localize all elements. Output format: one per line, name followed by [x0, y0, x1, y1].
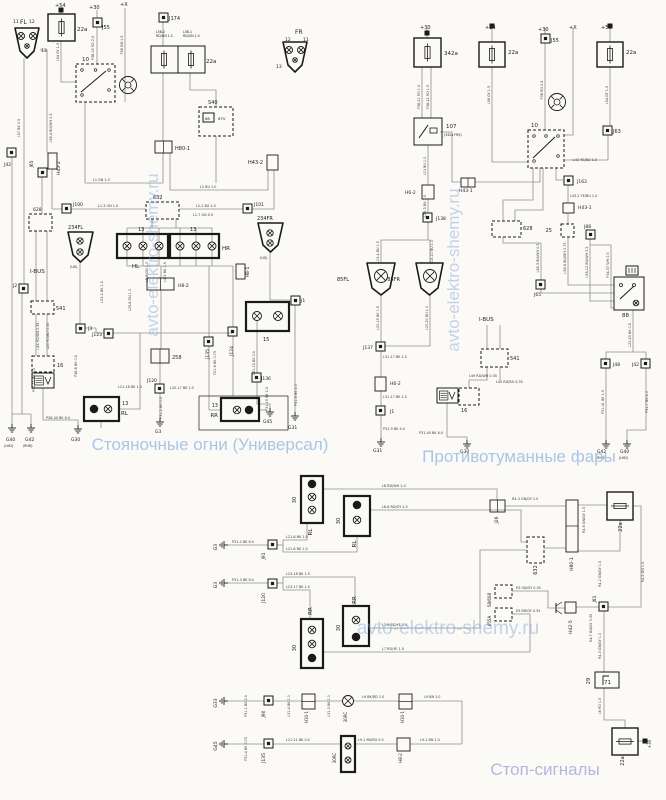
power-terminal [425, 31, 430, 36]
component-label: 16 [57, 363, 63, 369]
wire-label: L2 BU 1.0 [200, 185, 216, 189]
component-label: 342a [444, 51, 458, 57]
wire-label: P21-6 BK 0.75 [213, 351, 217, 375]
wire-label: P31-9 BK 4.0 [383, 427, 405, 431]
wire-label: L21-21 BK 0.5 [286, 738, 310, 742]
junction-connector [567, 179, 570, 182]
lamp-filled-icon [90, 405, 98, 413]
diagram-background [0, 0, 666, 800]
lamp-filled-icon [308, 480, 316, 488]
wire-label: L58-12 BU/WH 0.5 [585, 246, 589, 277]
component-label: G40 [620, 449, 629, 455]
component-label: 632 [533, 565, 539, 575]
wire-label: R4-3 GN/GY 1.0 [512, 497, 538, 501]
component-label: G33 [213, 698, 219, 707]
component-label: RR [210, 413, 218, 419]
wire-label: L9 BN 1.0 [424, 695, 440, 699]
component-label: 22a [620, 756, 626, 765]
wire-label: L44 RD/GN 0.35 [36, 322, 40, 349]
component-label: FR [295, 29, 303, 36]
component-label: H8-2 [178, 283, 189, 289]
component-label: 13 [41, 48, 47, 54]
component-label: I-BUS [30, 269, 45, 275]
component-label: J42 [3, 162, 11, 168]
component-label: RD/GN 1.0 [156, 34, 173, 38]
component-label: J136 [260, 376, 271, 382]
component-label: I-BUS [479, 317, 494, 323]
component-label: 30RC [343, 712, 348, 723]
component-label: S40 [208, 100, 218, 106]
wire-label: P31-11 BK 0.5 [32, 368, 36, 392]
wire-label: L58-6 BU/WH 0.75 [563, 242, 567, 273]
wire-label: L54 GY 1.5 [605, 86, 609, 104]
component-label: H8-2 [398, 753, 403, 763]
component-label: J88 [583, 224, 591, 230]
wire-label: L21-8 BK 1.0 [286, 535, 308, 539]
component-label: J135 [261, 753, 267, 764]
component-label: 67V [218, 116, 226, 121]
junction-connector [294, 299, 297, 302]
lamp-filled-icon [245, 406, 253, 414]
component-label: +30 [647, 739, 652, 748]
component-label: 30 [336, 625, 342, 631]
component-label: 13 [276, 64, 282, 70]
wire-label: L58-3 BU/WH 0.5 [536, 244, 540, 273]
wire-label: L13 BU 1.0 [423, 157, 427, 176]
component-label: RR [308, 607, 314, 615]
wire-label: L21-18 BK 1.0 [118, 385, 142, 389]
component-label: 22a [508, 50, 518, 56]
wire-label: R4-5 GN 1.5 [641, 562, 645, 583]
wire-label: R4-6 GN/GY 1.5 [582, 507, 586, 533]
component-label: 234FL [68, 225, 83, 231]
wire-label: L6 RD 1.5 [598, 698, 602, 715]
component-label: 30 [336, 518, 342, 524]
component-label: 11 [303, 37, 309, 43]
wire-label: P38-40 BK 6.0 [46, 416, 70, 420]
component-label: J55 [101, 25, 110, 31]
wire-label: L20-17 BK 1.0 [170, 386, 194, 390]
lamp-filled-icon [353, 501, 361, 509]
wire-label: L8-6 RD/GY 1.5 [382, 505, 408, 509]
wire-label: L20-19 BK 1.5 [376, 306, 380, 330]
component-label: FL [20, 19, 27, 26]
wire-label: P31-4 BK 0.75 [244, 737, 248, 761]
component-label: 12 [29, 19, 35, 25]
component-label: H80-1 [175, 146, 190, 152]
component-label: 628 [523, 226, 533, 232]
wire-label: L31-4 BK 1.0 [287, 695, 291, 717]
junction-connector [604, 362, 607, 365]
component-label: J135 [205, 349, 211, 360]
component-label: J65 [533, 292, 541, 298]
component-label: J91 [261, 552, 267, 560]
junction-connector [65, 207, 68, 210]
wire-label: L9-1 BN 1.0 [420, 738, 440, 742]
component-label: HL [132, 264, 140, 270]
component-label: H42-5 [568, 620, 574, 634]
junction-connector [231, 330, 234, 333]
wire-label: P31-2 BK 0.5 [159, 397, 163, 419]
component-label: 58/608 [487, 593, 492, 608]
component-label: 12 [285, 37, 291, 43]
component-label: +54 [55, 3, 66, 9]
component-label: J163 [576, 179, 587, 185]
component-label: H43-2 [56, 161, 62, 175]
component-label: 541 [510, 356, 520, 362]
junction-connector [158, 387, 161, 390]
component-label: RR [352, 596, 358, 604]
component-label: 71 [604, 680, 611, 686]
wire-label: P38 RD 2.5 [540, 81, 544, 100]
component-label: +30 [89, 5, 100, 11]
component-label: 13 [212, 403, 218, 409]
component-label: J90 [261, 710, 267, 718]
wire-label: L23-2 BK 1.5 [100, 281, 104, 303]
wiring-diagram-canvas: L54 GY 1.5P38-19 RD 2.5P38 GN 1.5L57 BK … [0, 0, 666, 800]
component-label: 22a [626, 50, 636, 56]
component-label: J65 [29, 160, 35, 168]
wire-label: E5 GN/GY 0.35 [516, 586, 541, 590]
component-label: G40 [6, 437, 15, 443]
wire-label: L8 RD/WH 1.0 [382, 484, 406, 488]
junction-connector [267, 742, 270, 745]
section-title-parking-lights: Стояночные огни (Универсал) [92, 435, 329, 454]
wire-label: L31-17 BK 2.5 [383, 355, 407, 359]
junction-connector [22, 287, 25, 290]
component-label: J26 [494, 516, 500, 524]
wire-label: L58-4 BU/WH 0.5 [49, 114, 53, 143]
component-label: 10 [82, 57, 89, 63]
component-label: 68 [205, 116, 210, 121]
wire-label: L20-20 BU 1.0 [425, 306, 429, 330]
component-label: 11 [13, 19, 19, 25]
junction-connector [602, 605, 605, 608]
component-label: H80-1 [569, 557, 575, 571]
wire-label: P31-8 BK 4.0 [294, 384, 298, 406]
wire-label: R4-3 GN/GY 1.0 [598, 633, 602, 659]
component-label: J124 [229, 346, 235, 357]
wire-label: L49 RD/WH 0.35 [469, 374, 497, 378]
component-label: 30 [292, 497, 298, 503]
component-label: J1 [389, 409, 394, 415]
wire-label: L2-2 BU 1.0 [196, 204, 216, 208]
component-label: G45 [213, 741, 219, 750]
wire-label: P38-8 BK 0.5 [74, 355, 78, 377]
junction-connector [96, 21, 99, 24]
component-label: 30 [292, 645, 298, 651]
component-label: H6-2 [405, 190, 416, 196]
component-label: +30 [538, 27, 549, 33]
wire-label: L7 RD/YE 1.0 [382, 647, 404, 651]
wire-label: L29-8 GN 1.0 [128, 289, 132, 311]
component-label: 25 [546, 228, 552, 234]
component-label: 22a [206, 59, 216, 65]
wire-label: P34-37 WH 0.5 [606, 252, 610, 277]
component-label: G45 [263, 419, 272, 425]
junction-connector [544, 37, 547, 40]
component-label: G31 [373, 448, 382, 454]
wire-label: P38 GN 1.5 [120, 35, 124, 54]
junction-connector [41, 171, 44, 174]
component-label: 85FR [387, 277, 400, 283]
wire-label: P31-19 BK 2.5 [265, 387, 269, 411]
component-label: J120 [146, 378, 157, 384]
component-label: 22a [77, 27, 87, 33]
junction-connector [271, 582, 274, 585]
watermark: avto-elektro-shemy.ru [444, 188, 463, 351]
component-label: G3 [213, 582, 219, 588]
component-label: J101 [253, 202, 264, 208]
wire-label: L13-10 BU 1.0 [430, 240, 434, 264]
junction-connector [589, 233, 592, 236]
wire-label: L20-43 BK 0.5 [628, 323, 632, 347]
component-label: G42 [25, 437, 34, 443]
component-label: +X [120, 2, 128, 8]
wire-label: L57 BK 0.5 [17, 119, 21, 137]
component-label: 30RC [332, 753, 337, 764]
component-label: 628 [33, 207, 42, 213]
component-label: 85FL [337, 277, 349, 283]
wire-label: P38-21 RD 1.5 [417, 85, 421, 109]
component-label: RD/GN 1.0 [183, 34, 200, 38]
component-label: RL [121, 411, 129, 417]
component-label: HR [222, 246, 230, 252]
component-label: H10-1 [304, 711, 309, 724]
component-label: J63 [612, 129, 621, 135]
wire-label: L9 BK/RD 1.0 [362, 695, 384, 699]
component-label: 13 [122, 401, 128, 407]
junction-connector [271, 543, 274, 546]
wire-label: P31-1 BK 2.5 [244, 695, 248, 717]
junction-connector [267, 699, 270, 702]
wire-label: P31-41 BK 1.5 [601, 390, 605, 414]
wire-label: P31-7 BK 4.0 [645, 391, 649, 413]
wire-label: L45 RD/BU 0.35 [496, 380, 523, 384]
component-label: (RHD) [23, 444, 33, 448]
component-label: 258 [172, 355, 182, 361]
wire-label: P31-3 BK 6.0 [232, 578, 254, 582]
component-label: (342a FRS) [444, 133, 462, 137]
junction-connector [255, 376, 258, 379]
component-label: J174 [168, 16, 180, 22]
component-label: J2 [12, 283, 17, 289]
wire-label: L23-17 BK 1.5 [286, 585, 310, 589]
wire-label: R4-2 GN/GY 1.5 [598, 561, 602, 587]
component-label: H43-2 [248, 160, 263, 166]
component-label: 107 [446, 124, 457, 130]
junction-connector [644, 362, 647, 365]
component-label: G3 [213, 544, 219, 550]
component-label: (US) [260, 256, 268, 260]
component-label: 22a [618, 522, 624, 531]
watermark: avto-elektro-shemy.ru [143, 173, 162, 336]
component-label: H6-2 [390, 381, 401, 387]
component-label: J42 [631, 362, 639, 368]
wire-label: L31-17 BK 2.5 [383, 395, 407, 399]
wire-label: R4-7 GN/GY 0.35 [589, 614, 593, 642]
wire-label: L1 GN 1.5 [93, 178, 110, 182]
wire-label: L43 YE/BU 1.0 [573, 158, 597, 162]
junction-connector [79, 327, 82, 330]
wire-label: L23-18 BK 1.5 [286, 572, 310, 576]
junction-connector [539, 283, 542, 286]
wire-label: L4-5 BU 1.5 [163, 262, 167, 282]
junction-connector [10, 151, 13, 154]
component-label: (LHD) [4, 444, 13, 448]
component-label: RL [308, 528, 314, 536]
wire-label: E5 BR/GY 0.35 [516, 609, 540, 613]
component-label: 10 [531, 123, 538, 129]
wire-label: L31-15 BK 0.5 [252, 351, 256, 375]
component-label: J100 [72, 202, 83, 208]
wire-label: L1-7 GN 0.5 [193, 213, 213, 217]
wire-label: L1-3 GN 1.0 [98, 204, 118, 208]
component-label: 16 [461, 408, 467, 414]
component-label: 88 [622, 313, 629, 319]
component-label: J55 [550, 38, 559, 44]
component-label: J1 [300, 298, 305, 304]
component-label: 29 [586, 678, 592, 684]
component-label: H10-1 [400, 711, 405, 724]
wire-label: P31-2 BK 6.0 [232, 540, 254, 544]
junction-connector [207, 340, 210, 343]
component-label: (LHD) [619, 456, 628, 460]
junction-connector [606, 129, 609, 132]
component-label: 541 [56, 306, 66, 312]
component-label: 15 [263, 337, 269, 343]
lamp-filled-icon [308, 654, 316, 662]
component-label: 234FR [257, 216, 273, 222]
component-label: G30 [71, 437, 80, 443]
component-label: +30 [420, 25, 431, 31]
component-label: J137 [362, 345, 373, 351]
wire-label: L45 RD/BU 0.35 [46, 323, 50, 350]
component-label: J3 [87, 326, 92, 332]
junction-connector [162, 16, 165, 19]
component-label: 13 [190, 227, 196, 233]
component-label: +X [569, 25, 577, 31]
component-label: J120 [261, 593, 267, 604]
component-label: J48 [612, 362, 620, 368]
component-label: H43-1 [578, 205, 592, 211]
wire-label: L9-1 BK/RD 0.5 [358, 738, 384, 742]
wire-label: P31-40 BK 6.0 [419, 431, 443, 435]
wire-label: L43-2 YE/BU 1.0 [570, 194, 597, 198]
component-label: G31 [288, 425, 297, 431]
component-label: +54 [485, 25, 496, 31]
component-label: (US) [70, 265, 78, 269]
wiring-diagram-page: L54 GY 1.5P38-19 RD 2.5P38 GN 1.5L57 BK … [0, 0, 666, 800]
component-label: H8-1 [245, 266, 251, 277]
junction-connector [379, 409, 382, 412]
junction-connector [379, 345, 382, 348]
wire-label: P38-22 RD 1.5 [426, 85, 430, 109]
component-label: J123 [91, 332, 102, 338]
wire-label: L31-3 BK 1.0 [327, 695, 331, 717]
wire-label: L13-4 BU 1.5 [376, 241, 380, 263]
component-label: +54 [601, 25, 612, 31]
wire-label: P38-19 RD 2.5 [91, 36, 95, 60]
component-label: RL [352, 540, 358, 548]
watermark: avto-elektro-shemy.ru [357, 618, 539, 639]
junction-connector [246, 207, 249, 210]
section-title-fog-lights: Противотуманные фары [422, 447, 616, 466]
wire-label: L58 GY 1.5 [487, 86, 491, 104]
wire-label: L54 GY 1.5 [56, 43, 60, 61]
wire-label: L13-3 BU 1.5 [423, 195, 427, 217]
wire-label: L21-6 BK 1.0 [286, 547, 308, 551]
junction-connector [107, 332, 110, 335]
component-label: J81 [592, 595, 598, 603]
section-title-brake-lights: Стоп-сигналы [490, 760, 599, 779]
